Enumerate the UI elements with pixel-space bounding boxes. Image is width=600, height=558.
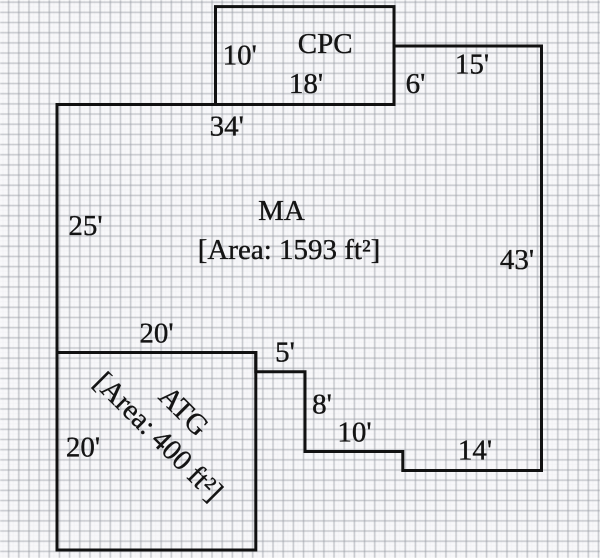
svg-text:10': 10': [223, 39, 257, 71]
svg-text:10': 10': [337, 416, 371, 448]
svg-text:43': 43': [500, 244, 534, 276]
svg-text:25': 25': [68, 210, 102, 242]
svg-text:15': 15': [455, 48, 489, 80]
svg-text:[Area: 1593 ft²]: [Area: 1593 ft²]: [198, 234, 381, 266]
svg-text:CPC: CPC: [298, 28, 353, 60]
svg-text:20': 20': [66, 431, 100, 463]
svg-text:5': 5': [275, 336, 295, 368]
svg-text:18': 18': [289, 68, 323, 100]
svg-text:8': 8': [312, 388, 332, 420]
svg-text:34': 34': [210, 110, 244, 142]
svg-text:20': 20': [139, 317, 173, 349]
svg-text:14': 14': [458, 434, 492, 466]
svg-text:6': 6': [406, 68, 426, 100]
svg-text:MA: MA: [258, 195, 305, 227]
